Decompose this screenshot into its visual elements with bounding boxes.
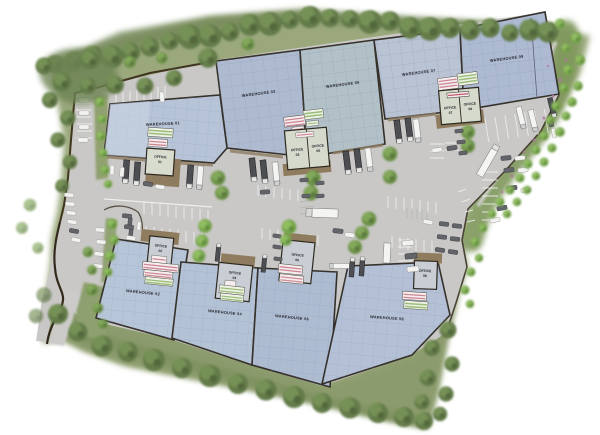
- svg-text:03: 03: [296, 153, 300, 157]
- svg-text:07: 07: [449, 111, 453, 115]
- svg-text:01: 01: [158, 160, 162, 164]
- svg-text:04: 04: [232, 276, 236, 280]
- svg-text:02: 02: [158, 249, 162, 253]
- svg-text:09: 09: [468, 107, 472, 111]
- svg-text:OFFICE: OFFICE: [419, 269, 432, 273]
- svg-text:05: 05: [316, 149, 320, 153]
- svg-text:06: 06: [295, 258, 299, 262]
- svg-text:08: 08: [423, 274, 427, 278]
